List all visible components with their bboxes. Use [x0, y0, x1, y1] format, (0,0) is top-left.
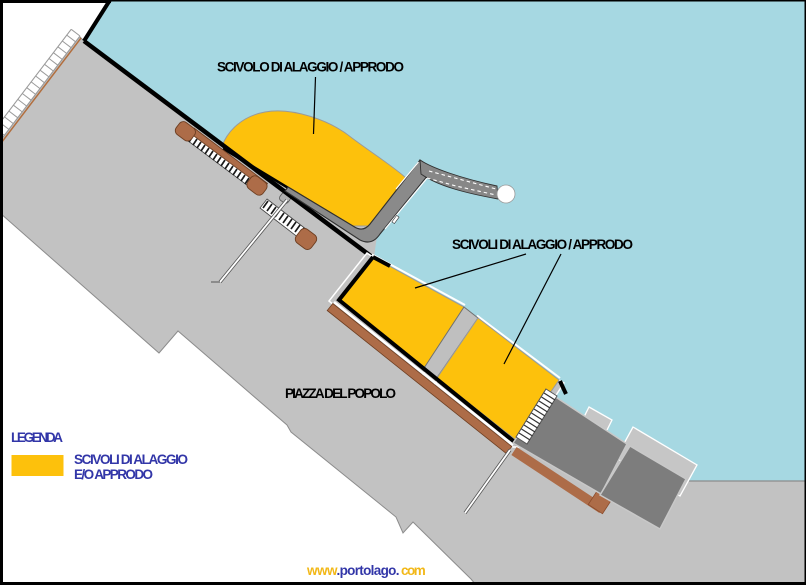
svg-text:E/O APPRODO: E/O APPRODO	[74, 467, 153, 482]
svg-text:LEGENDA: LEGENDA	[11, 430, 63, 445]
svg-text:www.portolago. com: www.portolago. com	[306, 563, 426, 578]
svg-text:SCIVOLI DI ALAGGIO: SCIVOLI DI ALAGGIO	[74, 452, 188, 467]
svg-text:SCIVOLO DI ALAGGIO / APPRODO: SCIVOLO DI ALAGGIO / APPRODO	[217, 60, 404, 75]
svg-text:PIAZZA DEL POPOLO: PIAZZA DEL POPOLO	[285, 386, 396, 401]
svg-text:SCIVOLI DI ALAGGIO / APPRODO: SCIVOLI DI ALAGGIO / APPRODO	[452, 237, 633, 252]
